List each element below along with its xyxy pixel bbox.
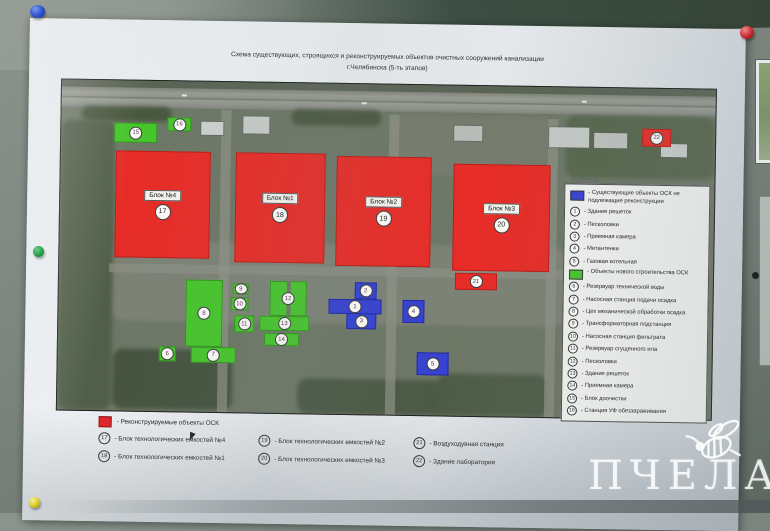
map-block-number: 19 bbox=[375, 210, 391, 226]
map-block-number: 2 bbox=[359, 284, 372, 297]
adjacent-picture bbox=[756, 60, 770, 163]
map-block-number: 7 bbox=[207, 348, 220, 361]
map-block-2: 2 bbox=[355, 282, 377, 299]
legend-item-5: 5- Газовая котельная bbox=[569, 255, 704, 270]
bottom-legend-column: 17- Блок технологических емкостей №418- … bbox=[98, 432, 258, 465]
push-pin-yellow bbox=[29, 497, 40, 508]
legend-item-label: - Резервуар технической воды bbox=[583, 284, 665, 291]
map-block-number: 1 bbox=[348, 300, 361, 313]
legend-item-label: - Насосная станция подачи осадка bbox=[583, 296, 677, 303]
map-block-8: 8 bbox=[185, 279, 223, 347]
trees-patch bbox=[291, 109, 381, 126]
wall-dot bbox=[752, 272, 759, 279]
bottom-legend-column: 21- Воздуходувная станция22- Здание лабо… bbox=[413, 437, 504, 468]
schematic-poster: Схема существующих, строящихся и реконст… bbox=[22, 18, 746, 531]
push-pin-blue bbox=[30, 5, 45, 18]
map-block-number: 22 bbox=[650, 131, 663, 144]
push-pin-red bbox=[740, 26, 754, 39]
map-block-13: 13 bbox=[259, 316, 309, 332]
map-block-number: 8 bbox=[197, 307, 210, 320]
map-block-18: Блок №118 bbox=[234, 152, 326, 263]
building bbox=[454, 126, 482, 141]
legend-item-18: 18- Блок технологических емкостей №1 bbox=[98, 450, 258, 465]
map-block-number: 9 bbox=[234, 283, 247, 294]
push-pin-green bbox=[33, 246, 44, 257]
legend-item-label: - Здание решеток bbox=[581, 371, 628, 378]
bottom-legend-column: 19- Блок технологических емкостей №220- … bbox=[258, 435, 413, 467]
map-block-22: 22 bbox=[642, 129, 671, 147]
legend-item-number: 18 bbox=[98, 450, 110, 462]
legend-item-number: 21 bbox=[413, 437, 425, 449]
legend-item-label: - Газовая котельная bbox=[583, 259, 637, 266]
map-block-number: 18 bbox=[272, 207, 288, 223]
map-block-name: Блок №1 bbox=[262, 193, 299, 205]
legend-item-label: - Песколовки bbox=[582, 358, 617, 365]
map-block-number: 12 bbox=[282, 292, 295, 305]
map-block-20: Блок №320 bbox=[452, 164, 551, 273]
legend-item-label: - Блок технологических емкостей №2 bbox=[274, 437, 385, 446]
map-block-number: 10 bbox=[233, 297, 246, 310]
legend-item-label: - Песколовки bbox=[584, 221, 619, 228]
legend-item-label: - Трансформаторная подстанция bbox=[582, 321, 671, 328]
legend-item-number: 5 bbox=[569, 256, 579, 266]
legend-item-label: - Приемная камера bbox=[584, 234, 636, 241]
map-block-11: 11 bbox=[234, 315, 254, 332]
map-block-number: 11 bbox=[238, 317, 251, 330]
legend-item-16: 16- Станция УФ обеззараживания bbox=[567, 404, 702, 419]
legend-item-number: 10 bbox=[568, 331, 578, 341]
legend-item-number: 19 bbox=[258, 435, 270, 447]
legend-item-number: 13 bbox=[567, 368, 577, 378]
legend-item-number: 3 bbox=[570, 232, 580, 242]
bottom-legend: - Реконструируемые объекты ОСК 17- Блок … bbox=[98, 416, 504, 468]
map-block-3: 3 bbox=[346, 313, 376, 329]
existing-swatch-label: - Существующие объекты ОСК не подлежащие… bbox=[588, 190, 705, 207]
legend-existing-items: 1- Здание решеток2- Песколовки3- Приемна… bbox=[569, 206, 705, 270]
legend-item-number: 8 bbox=[568, 306, 578, 316]
vehicle bbox=[182, 94, 187, 96]
building bbox=[594, 133, 627, 149]
map-block-14: 14 bbox=[264, 333, 299, 347]
legend-item-number: 12 bbox=[568, 356, 578, 366]
legend-item-number: 17 bbox=[98, 432, 110, 444]
map-block-21: 21 bbox=[455, 273, 497, 291]
recon-swatch bbox=[99, 416, 112, 427]
legend-item-label: - Блок технологических емкостей №4 bbox=[114, 435, 225, 444]
map-block-16: 16 bbox=[167, 117, 191, 131]
map-block-number: 20 bbox=[493, 217, 509, 233]
new-swatch-label: - Объекты нового строительства ОСК bbox=[587, 269, 688, 278]
legend-item-label: - Здание лаборатории bbox=[429, 458, 495, 466]
map-block-number: 15 bbox=[129, 126, 142, 139]
legend-item-label: - Воздуходувная станция bbox=[429, 440, 503, 448]
building bbox=[243, 116, 269, 133]
legend-item-21: 21- Воздуходувная станция bbox=[413, 437, 504, 450]
map-block-1: 1 bbox=[328, 299, 381, 315]
legend-item-20: 20- Блок технологических емкостей №3 bbox=[258, 453, 413, 467]
legend-item-number: 22 bbox=[413, 455, 425, 467]
legend-item-label: - Блок технологических емкостей №3 bbox=[274, 455, 385, 464]
legend-new-header: - Объекты нового строительства ОСК bbox=[569, 269, 704, 282]
trees-patch bbox=[297, 378, 448, 415]
legend-item-number: 6 bbox=[569, 282, 579, 292]
legend-item-number: 9 bbox=[568, 319, 578, 329]
legend-item-label: - Блок доочистки bbox=[581, 395, 626, 402]
map-block-number: 16 bbox=[173, 118, 186, 131]
map-block-number: 6 bbox=[161, 347, 174, 360]
legend-item-label: - Блок технологических емкостей №1 bbox=[114, 453, 225, 462]
legend-item-17: 17- Блок технологических емкостей №4 bbox=[98, 432, 258, 447]
map-block-number: 5 bbox=[426, 357, 439, 370]
legend-item-number: 14 bbox=[567, 381, 577, 391]
trees-left bbox=[57, 120, 116, 411]
adjacent-empty-frame bbox=[759, 196, 770, 366]
legend-item-number: 7 bbox=[569, 294, 579, 304]
new-swatch bbox=[569, 270, 583, 280]
legend-item-label: - Станция УФ обеззараживания bbox=[581, 408, 666, 415]
map-block-10: 10 bbox=[230, 297, 248, 310]
legend-item-label: - Метантенки bbox=[583, 246, 618, 253]
legend-item-label: - Цех механической обработки осадка bbox=[582, 309, 685, 317]
recon-swatch-label: - Реконструируемые объекты ОСК bbox=[117, 418, 219, 427]
map-block-name: Блок №4 bbox=[144, 189, 181, 201]
map-block-5: 5 bbox=[416, 352, 448, 375]
legend-new-items: 6- Резервуар технической воды7- Насосная… bbox=[567, 281, 704, 419]
existing-swatch bbox=[570, 191, 584, 201]
legend-panel: - Существующие объекты ОСК не подлежащие… bbox=[561, 183, 711, 423]
legend-item-number: 4 bbox=[569, 244, 579, 254]
map-block-15: 15 bbox=[114, 122, 157, 143]
building bbox=[201, 122, 223, 135]
legend-item-number: 20 bbox=[258, 453, 270, 465]
legend-item-number: 16 bbox=[567, 406, 577, 416]
legend-item-label: - Здание решеток bbox=[584, 209, 631, 216]
legend-item-label: - Приемная камера bbox=[581, 383, 633, 390]
legend-existing-header: - Существующие объекты ОСК не подлежащие… bbox=[570, 190, 705, 207]
map-block-9: 9 bbox=[233, 283, 249, 294]
paper-bottom-shadow bbox=[60, 500, 770, 513]
map-block-number: 13 bbox=[278, 317, 291, 330]
map-block-19: Блок №219 bbox=[335, 156, 432, 267]
legend-item-label: - Резервуар сгущенного ила bbox=[582, 346, 657, 353]
map-block-7: 7 bbox=[191, 347, 236, 364]
map-block-number: 17 bbox=[154, 203, 170, 219]
map-block-17: Блок №417 bbox=[114, 150, 211, 258]
map-block-4: 4 bbox=[402, 300, 424, 323]
legend-item-number: 1 bbox=[570, 207, 580, 217]
map-block-number: 21 bbox=[469, 275, 482, 288]
legend-item-19: 19- Блок технологических емкостей №2 bbox=[258, 435, 413, 449]
building bbox=[549, 127, 589, 148]
map-block-12: 12 bbox=[269, 281, 307, 317]
recon-header: - Реконструируемые объекты ОСК bbox=[99, 416, 504, 433]
vehicle bbox=[362, 102, 367, 104]
map-block-name: Блок №2 bbox=[365, 196, 402, 208]
vehicle bbox=[582, 101, 587, 103]
map-block-number: 3 bbox=[355, 315, 368, 328]
legend-item-22: 22- Здание лаборатории bbox=[413, 455, 504, 468]
legend-item-number: 15 bbox=[567, 393, 577, 403]
legend-item-number: 11 bbox=[568, 344, 578, 354]
map-block-name: Блок №3 bbox=[483, 203, 520, 215]
bottom-legend-grid: 17- Блок технологических емкостей №418- … bbox=[98, 432, 504, 468]
legend-item-number: 2 bbox=[570, 219, 580, 229]
map-block-number: 14 bbox=[275, 333, 288, 346]
trees-patch bbox=[437, 373, 548, 417]
map-block-6: 6 bbox=[159, 346, 176, 361]
map-block-number: 4 bbox=[407, 305, 420, 318]
legend-item-label: - Насосная станция фильтрата bbox=[582, 333, 665, 340]
poster-title: Схема существующих, строящихся и реконст… bbox=[29, 47, 745, 79]
